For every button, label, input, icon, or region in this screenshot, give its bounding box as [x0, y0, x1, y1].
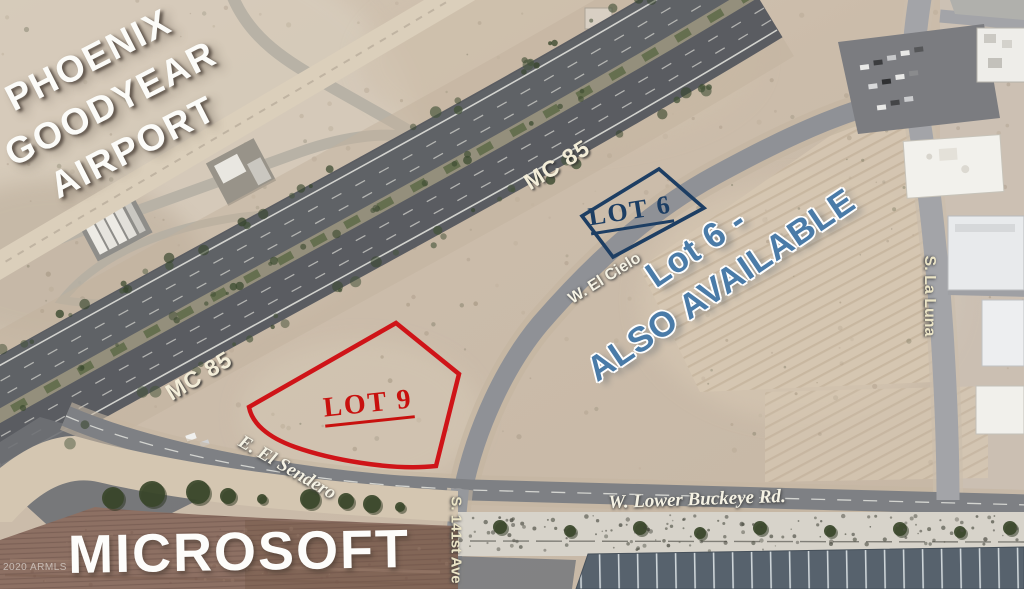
- parking-rows: [576, 547, 1024, 589]
- aerial-map: PHOENIX GOODYEAR AIRPORT MC 85 MC 85 LOT…: [0, 0, 1024, 589]
- satellite-imagery: [0, 0, 1024, 589]
- bottom-right-lot: [452, 512, 1024, 589]
- parking-lot: [838, 24, 1000, 134]
